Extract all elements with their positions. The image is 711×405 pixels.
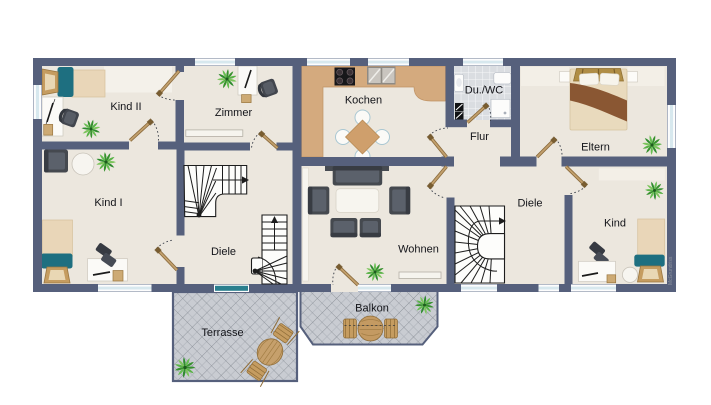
- svg-text:Kind: Kind: [604, 218, 626, 230]
- svg-text:Diele: Diele: [211, 246, 236, 258]
- svg-text:Balkon: Balkon: [355, 303, 389, 315]
- svg-text:Flur: Flur: [470, 131, 489, 143]
- svg-text:McGrundriss: McGrundriss: [668, 256, 674, 285]
- svg-text:Zimmer: Zimmer: [215, 107, 253, 119]
- svg-text:Wohnen: Wohnen: [398, 244, 439, 256]
- svg-text:Kind I: Kind I: [94, 197, 122, 209]
- svg-text:Kind II: Kind II: [110, 101, 141, 113]
- svg-text:Kochen: Kochen: [345, 95, 382, 107]
- svg-text:Diele: Diele: [517, 198, 542, 210]
- svg-text:Terrasse: Terrasse: [201, 327, 243, 339]
- svg-text:Eltern: Eltern: [581, 142, 610, 154]
- svg-text:Du./WC: Du./WC: [465, 85, 504, 97]
